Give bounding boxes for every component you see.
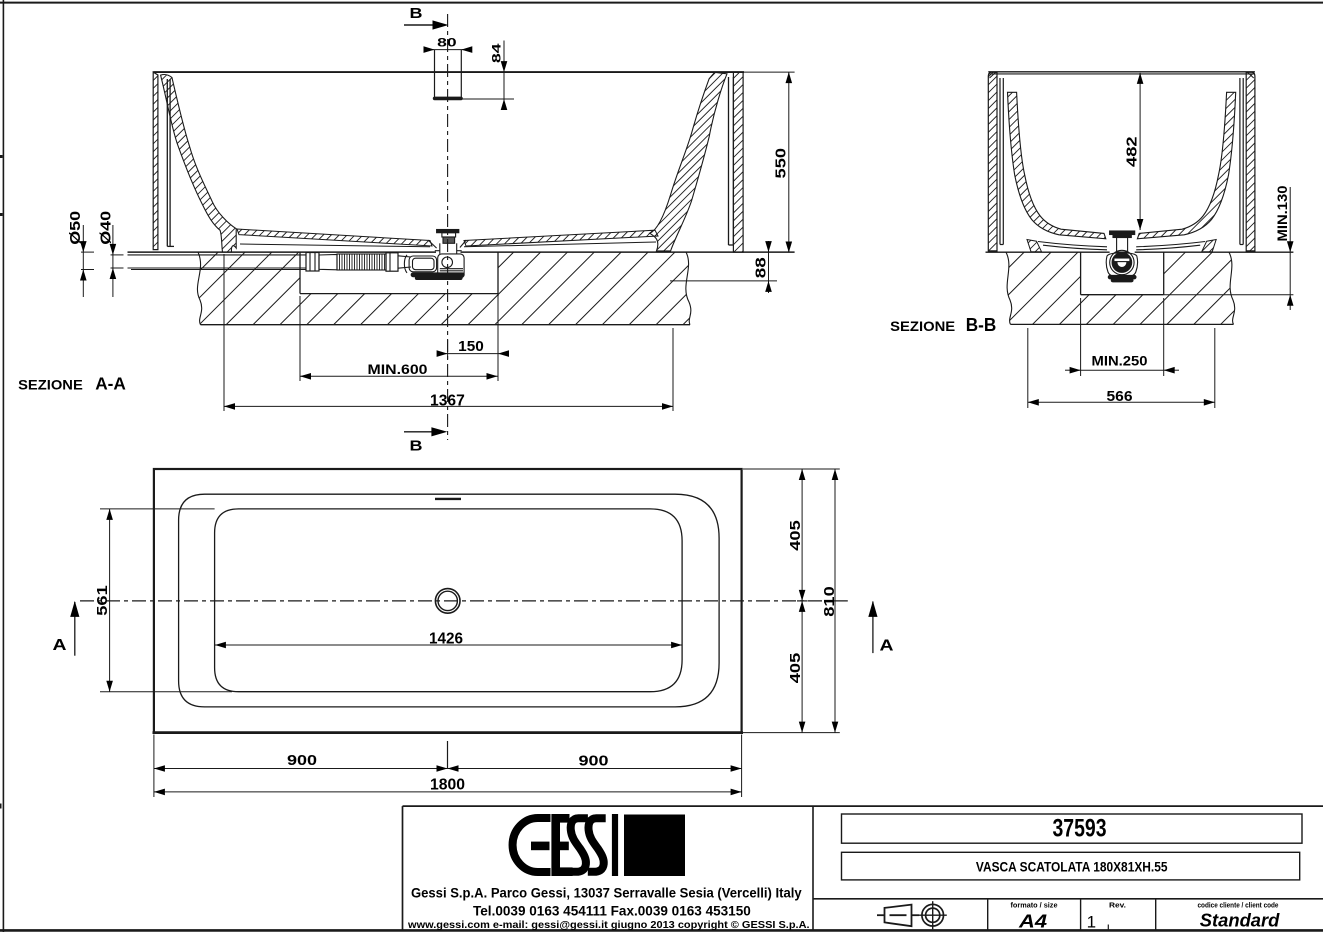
svg-text:88: 88 xyxy=(753,257,770,278)
svg-text:VASCA SCATOLATA 180X81XH.55: VASCA SCATOLATA 180X81XH.55 xyxy=(976,858,1168,874)
svg-text:405: 405 xyxy=(787,520,804,551)
svg-text:A: A xyxy=(880,638,895,655)
svg-text:900: 900 xyxy=(579,753,609,770)
svg-text:80: 80 xyxy=(437,36,457,50)
svg-text:Ø40: Ø40 xyxy=(99,211,115,245)
svg-text:Rev.: Rev. xyxy=(1109,901,1126,910)
svg-text:Standard: Standard xyxy=(1200,910,1280,931)
svg-text:566: 566 xyxy=(1107,388,1133,405)
svg-text:550: 550 xyxy=(773,148,790,179)
svg-text:1426: 1426 xyxy=(429,631,463,648)
svg-text:1367: 1367 xyxy=(430,392,465,409)
svg-text:SEZIONE: SEZIONE xyxy=(18,377,83,393)
svg-text:Tel.0039 0163 454111 Fax.0039: Tel.0039 0163 454111 Fax.0039 0163 45315… xyxy=(473,903,751,918)
svg-text:A-A: A-A xyxy=(95,374,126,394)
svg-text:810: 810 xyxy=(821,586,838,617)
svg-text:561: 561 xyxy=(94,585,111,616)
svg-text:www.gessi.com e-mail: gessi@ge: www.gessi.com e-mail: gessi@gessi.it giu… xyxy=(407,919,810,931)
svg-text:150: 150 xyxy=(458,338,484,355)
svg-text:B: B xyxy=(410,5,423,22)
svg-text:B-B: B-B xyxy=(966,314,997,335)
svg-text:B: B xyxy=(410,438,423,455)
svg-text:MIN.130: MIN.130 xyxy=(1274,185,1290,241)
svg-text:SEZIONE: SEZIONE xyxy=(890,318,955,334)
svg-text:37593: 37593 xyxy=(1053,815,1107,843)
svg-text:1800: 1800 xyxy=(430,777,465,794)
svg-text:Ø50: Ø50 xyxy=(68,211,84,245)
svg-text:A4: A4 xyxy=(1018,911,1047,931)
svg-text:MIN.600: MIN.600 xyxy=(368,361,428,377)
svg-text:codice cliente / client code: codice cliente / client code xyxy=(1198,901,1279,910)
svg-text:Gessi S.p.A. Parco Gessi, 1303: Gessi S.p.A. Parco Gessi, 13037 Serraval… xyxy=(411,886,802,901)
svg-text:formato / size: formato / size xyxy=(1011,901,1058,910)
svg-text:84: 84 xyxy=(490,43,504,63)
svg-text:405: 405 xyxy=(787,653,804,684)
svg-text:482: 482 xyxy=(1123,136,1140,167)
svg-text:1: 1 xyxy=(1087,912,1096,931)
svg-text:A: A xyxy=(53,637,68,654)
svg-text:900: 900 xyxy=(287,752,317,769)
svg-text:MIN.250: MIN.250 xyxy=(1092,352,1148,368)
